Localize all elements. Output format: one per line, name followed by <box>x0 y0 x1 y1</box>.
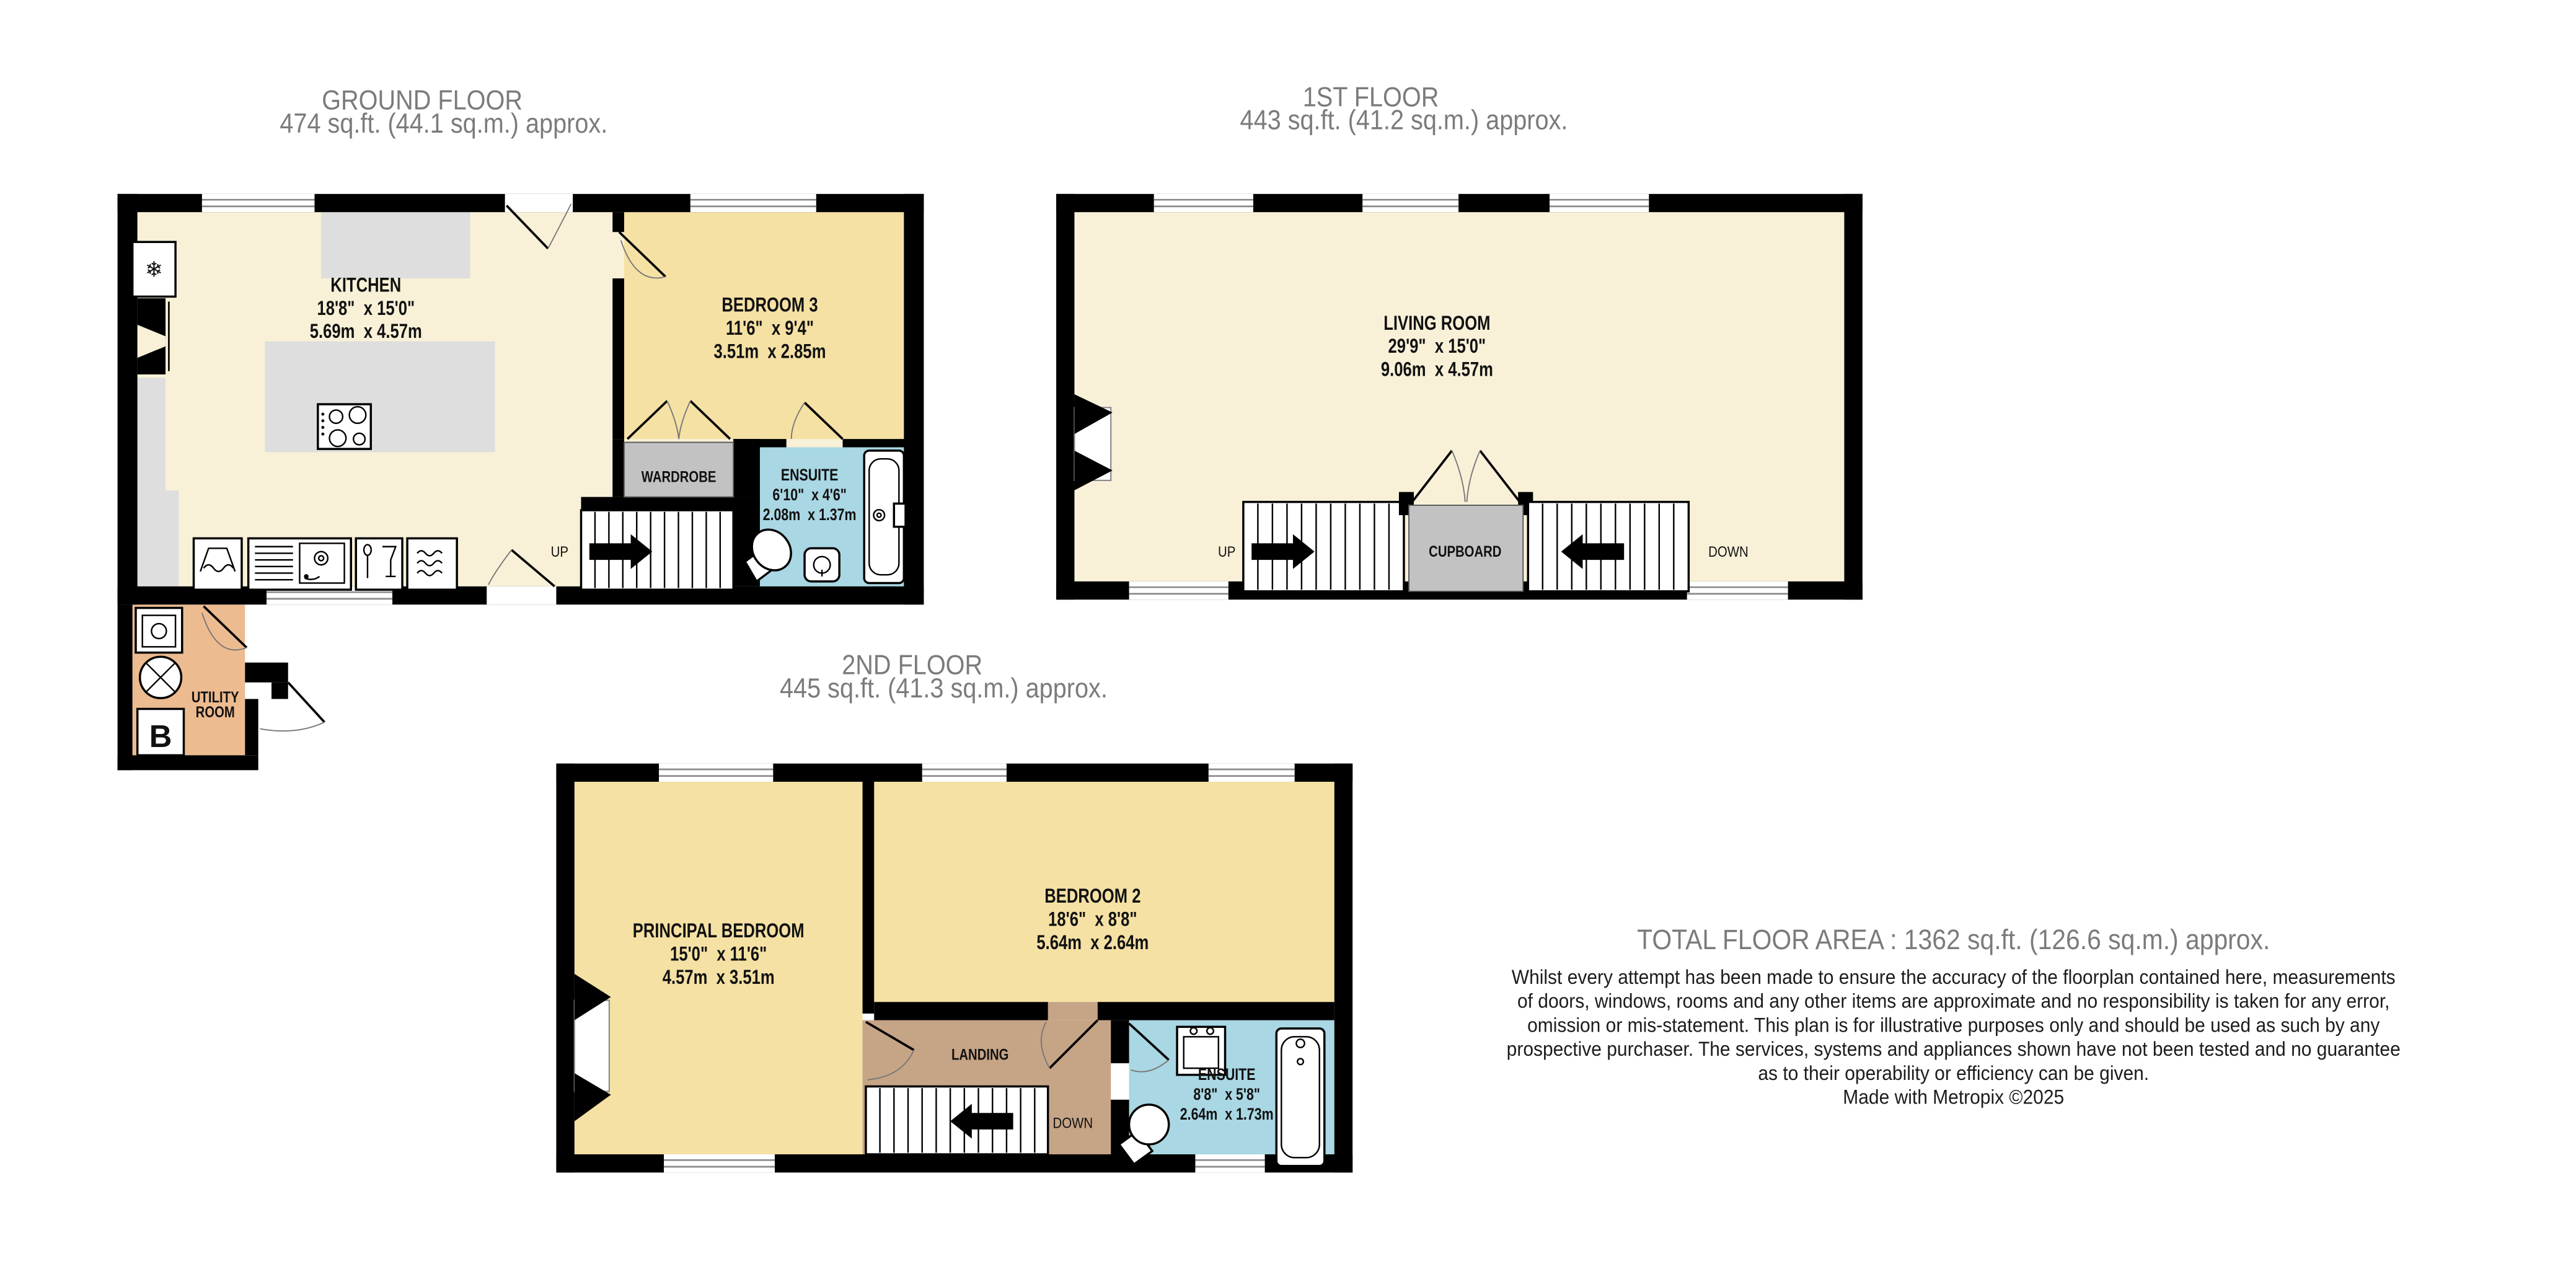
kitchen-counter-bottomleft <box>138 490 179 586</box>
stairs-down <box>866 1086 1048 1154</box>
second-ensuite-label: ENSUITE <box>1198 1066 1256 1084</box>
down-label: DOWN <box>1052 1115 1093 1131</box>
principal-bedroom-dims-metric: 4.57m x 3.51m <box>663 966 775 988</box>
kitchen-counter-left <box>138 378 165 490</box>
ground-floor-plan: GROUND FLOOR 474 sq.ft. (44.1 sq.m.) app… <box>118 85 924 771</box>
utensils-icon <box>356 538 402 590</box>
first-floor-area: 443 sq.ft. (41.2 sq.m.) approx. <box>1240 105 1568 135</box>
window <box>922 764 1007 782</box>
stairs-up <box>1243 502 1404 591</box>
second-floor-plan: 2ND FLOOR 445 sq.ft. (41.3 sq.m.) approx… <box>556 649 1352 1172</box>
landing-floor <box>1048 1002 1098 1020</box>
up-label: UP <box>551 543 568 560</box>
ground-ensuite-dims-imperial: 6'10" x 4'6" <box>772 486 846 505</box>
disclaimer-line: prospective purchaser. The services, sys… <box>1507 1038 2401 1060</box>
sink-icon <box>249 538 351 590</box>
window <box>690 194 816 212</box>
wall-seg <box>733 439 760 497</box>
svg-text:❄: ❄ <box>145 257 163 282</box>
wall-seg <box>1111 1020 1129 1063</box>
second-right-wall <box>1334 764 1352 1173</box>
cupboard-label: CUPBOARD <box>1429 542 1501 560</box>
living-room-label: LIVING ROOM <box>1383 312 1490 334</box>
living-room-dims-imperial: 29'9" x 15'0" <box>1388 336 1486 358</box>
window <box>1362 194 1458 212</box>
summary-block: TOTAL FLOOR AREA : 1362 sq.ft. (126.6 sq… <box>1507 924 2401 1108</box>
bedroom2-dims-imperial: 18'6" x 8'8" <box>1048 909 1137 931</box>
window <box>1209 764 1295 782</box>
divider-wall <box>612 278 624 439</box>
divider-wall <box>612 212 624 232</box>
total-floor-area: TOTAL FLOOR AREA : 1362 sq.ft. (126.6 sq… <box>1637 924 2270 955</box>
kitchen-dims-metric: 5.69m x 4.57m <box>310 321 422 343</box>
down-label: DOWN <box>1708 543 1749 560</box>
wall-seg <box>1098 1002 1334 1020</box>
oven-icon <box>407 538 457 590</box>
door-swing <box>260 683 324 731</box>
wall-seg <box>843 439 906 447</box>
window <box>659 764 773 782</box>
first-left-wall <box>1056 194 1074 599</box>
basin-icon <box>805 548 839 581</box>
kitchen-island <box>265 342 495 453</box>
window <box>1687 582 1788 599</box>
kitchen-label: KITCHEN <box>330 275 401 296</box>
second-floor-area: 445 sq.ft. (41.3 sq.m.) approx. <box>780 673 1108 703</box>
window <box>202 194 315 212</box>
window <box>1195 1154 1264 1172</box>
utility-sink-icon <box>140 657 182 698</box>
chimney-breast <box>138 298 169 374</box>
bedroom3-label: BEDROOM 3 <box>721 294 818 316</box>
first-floor-plan: 1ST FLOOR 443 sq.ft. (41.2 sq.m.) approx… <box>1056 81 1863 599</box>
stairs-down <box>1528 502 1688 591</box>
wall-seg <box>612 439 624 497</box>
second-left-wall <box>556 764 574 1173</box>
bedroom2-label: BEDROOM 2 <box>1044 885 1140 907</box>
ground-ensuite-dims-metric: 2.08m x 1.37m <box>763 506 857 524</box>
back-door-opening <box>487 586 556 604</box>
living-room-dims-metric: 9.06m x 4.57m <box>1381 359 1493 381</box>
extractor-icon <box>194 538 242 590</box>
washing-machine-icon <box>136 608 182 653</box>
front-door-opening <box>505 194 573 212</box>
bedroom3-dims-metric: 3.51m x 2.85m <box>713 341 826 363</box>
window <box>1154 194 1253 212</box>
bath-icon <box>1276 1028 1324 1166</box>
ground-floor-area: 474 sq.ft. (44.1 sq.m.) approx. <box>280 108 607 138</box>
wardrobe-label: WARDROBE <box>642 467 717 485</box>
principal-bedroom-label: PRINCIPAL BEDROOM <box>633 920 805 942</box>
divider-wall <box>863 782 875 1014</box>
ground-ensuite-label: ENSUITE <box>781 466 839 485</box>
window <box>1550 194 1649 212</box>
second-ensuite-dims-metric: 2.64m x 1.73m <box>1180 1105 1274 1124</box>
principal-bedroom-dims-imperial: 15'0" x 11'6" <box>670 944 767 965</box>
kitchen-counter-top <box>321 212 470 278</box>
disclaimer-line: as to their operability or efficiency ca… <box>1758 1062 2149 1084</box>
boiler-icon: B <box>138 709 184 756</box>
kitchen-dims-imperial: 18'8" x 15'0" <box>317 298 415 319</box>
up-label: UP <box>1218 543 1235 560</box>
disclaimer-line: Whilst every attempt has been made to en… <box>1512 966 2396 988</box>
hob-icon <box>318 404 371 449</box>
stairs-up <box>581 510 734 590</box>
disclaimer-line: omission or mis-statement. This plan is … <box>1527 1014 2380 1036</box>
bedroom2-dims-metric: 5.64m x 2.64m <box>1036 932 1149 953</box>
wall-seg <box>581 497 760 510</box>
fridge-freezer-icon: ❄ <box>133 242 175 296</box>
metropix-credit: Made with Metropix ©2025 <box>1843 1086 2064 1108</box>
window <box>1129 582 1228 599</box>
bedroom3-dims-imperial: 11'6" x 9'4" <box>726 317 814 339</box>
floorplan-svg: GROUND FLOOR 474 sq.ft. (44.1 sq.m.) app… <box>0 0 2576 1287</box>
utility-label-2: ROOM <box>196 703 235 721</box>
bath-icon <box>864 451 906 583</box>
window <box>664 1154 775 1172</box>
svg-text:B: B <box>149 719 172 754</box>
first-right-wall <box>1844 194 1862 599</box>
second-ensuite-dims-imperial: 8'8" x 5'8" <box>1193 1086 1260 1104</box>
disclaimer-line: of doors, windows, rooms and any other i… <box>1517 989 2389 1012</box>
wall-seg <box>874 1002 1048 1020</box>
landing-label: LANDING <box>951 1046 1008 1064</box>
chimney-breast <box>1074 394 1112 490</box>
ground-right-wall <box>904 194 924 604</box>
